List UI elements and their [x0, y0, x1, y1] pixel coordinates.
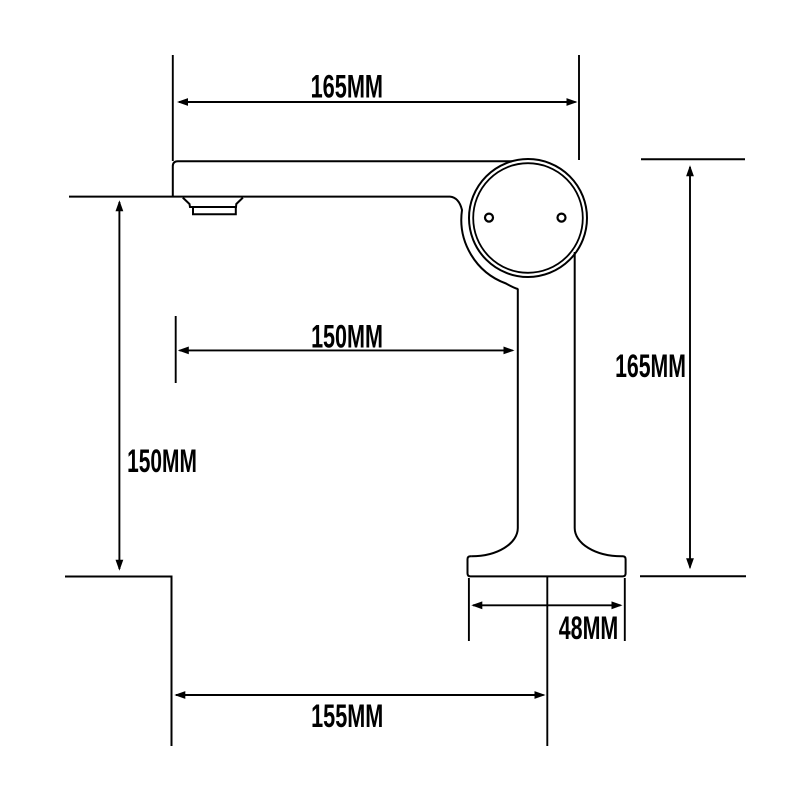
svg-text:150MM: 150MM: [127, 443, 197, 479]
svg-text:48MM: 48MM: [559, 610, 619, 646]
svg-text:150MM: 150MM: [311, 318, 383, 354]
svg-text:165MM: 165MM: [615, 347, 686, 384]
svg-text:165MM: 165MM: [311, 68, 383, 104]
svg-text:155MM: 155MM: [311, 698, 383, 734]
